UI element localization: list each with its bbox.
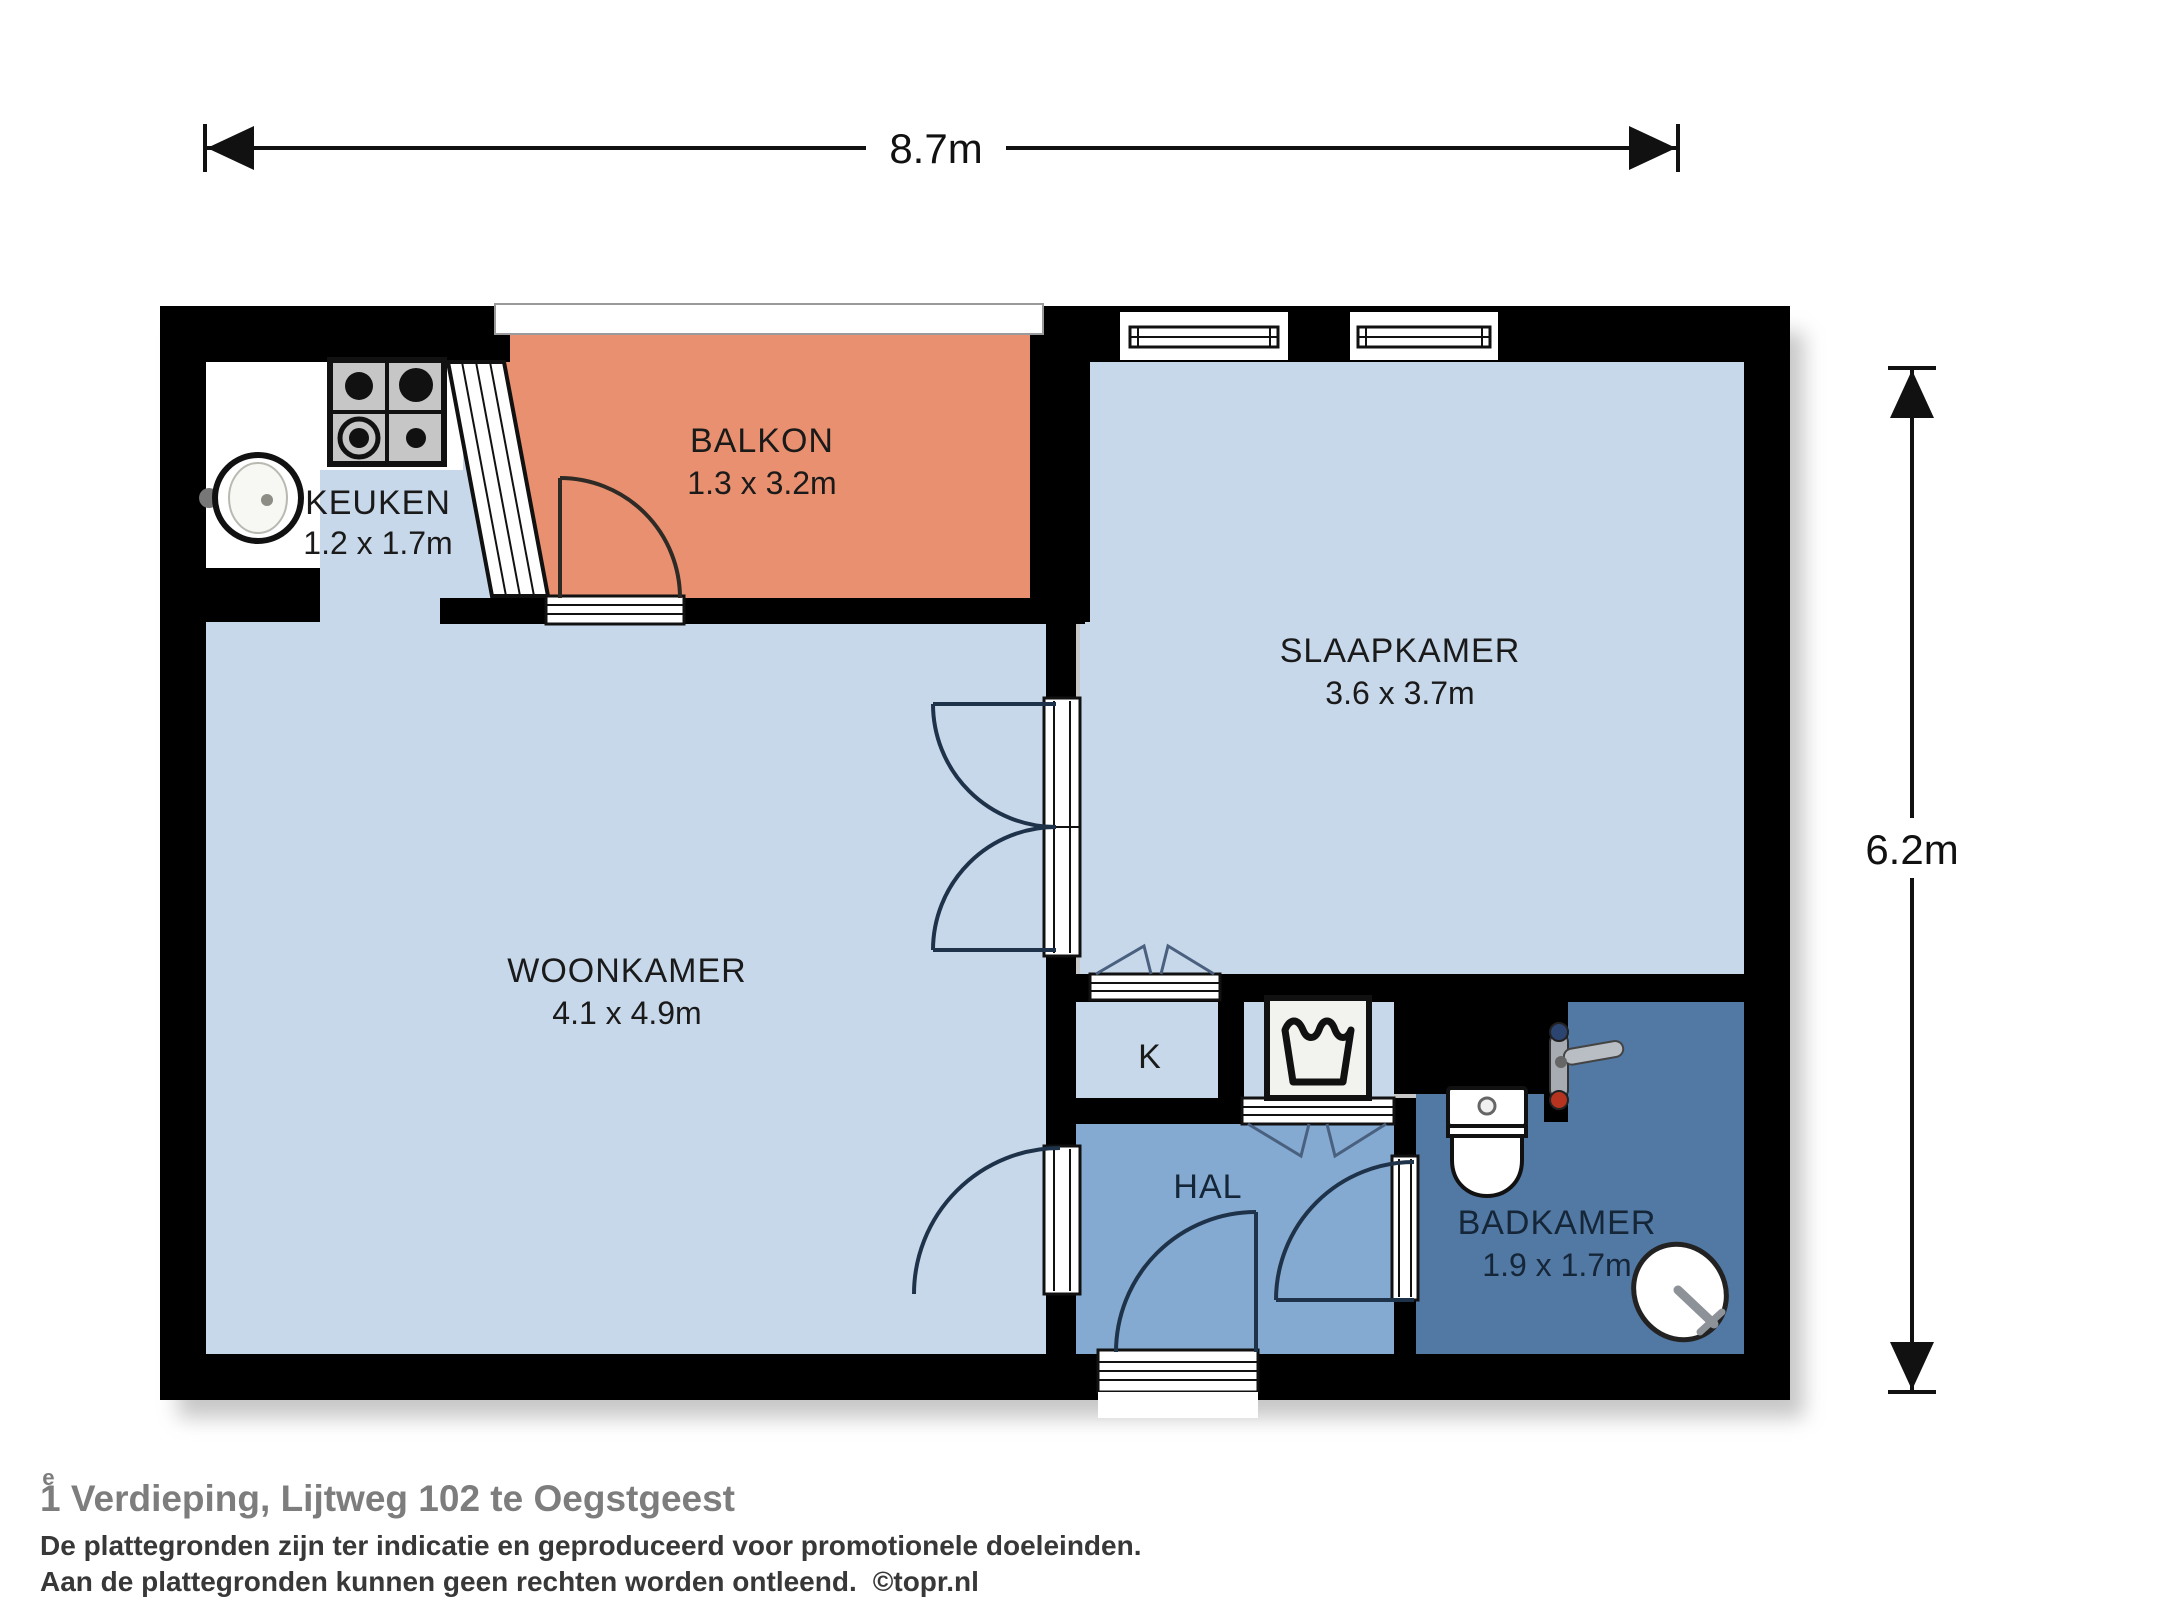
wall-top-left [160, 306, 510, 362]
badkamer-size: 1.9 x 1.7m [1482, 1247, 1631, 1283]
hal-floor [1076, 1124, 1396, 1356]
dimension-width-label: 8.7m [889, 125, 982, 172]
hal-label: HAL [1173, 1168, 1242, 1206]
wall-left [160, 306, 206, 1400]
window-slaapkamer-2 [1350, 312, 1498, 360]
disclaimer-line-2: Aan de plattegronden kunnen geen rechten… [40, 1564, 1440, 1600]
kast-label: K [1138, 1038, 1162, 1076]
floor-plan-svg: KEUKEN 1.2 x 1.7m BALKON 1.3 x 3.2m SLAA… [0, 0, 2160, 1620]
footer: 1e Verdieping, Lijtweg 102 te Oegstgeest… [40, 1478, 1440, 1601]
wall-bottom [160, 1354, 1790, 1400]
dimension-height-label: 6.2m [1865, 826, 1958, 873]
badkamer-label: BADKAMER [1458, 1204, 1657, 1242]
woonkamer-hal-door-strip [1044, 1146, 1080, 1294]
slaapkamer-label: SLAAPKAMER [1280, 632, 1521, 670]
toilet-icon [1448, 1088, 1526, 1196]
keuken-size: 1.2 x 1.7m [303, 525, 452, 561]
front-door-threshold [1098, 1350, 1258, 1418]
wall-kast-niche [1218, 1000, 1244, 1102]
washing-machine-icon [1267, 998, 1369, 1098]
wall-keuken-stub [160, 568, 320, 622]
badkamer-door-strip [1392, 1156, 1418, 1300]
wall-badkamer-block [1394, 974, 1556, 1094]
window-slaapkamer-1 [1120, 312, 1288, 360]
floorplan-page: { "dimensions": { "width_label": "8.7m",… [0, 0, 2160, 1620]
dimension-width: 8.7m [205, 116, 1678, 178]
balkon-railing [495, 304, 1043, 334]
page-title: 1e Verdieping, Lijtweg 102 te Oegstgeest [40, 1478, 1440, 1520]
disclaimer-text: Aan de plattegronden kunnen geen rechten… [40, 1566, 857, 1597]
keuken-label: KEUKEN [305, 484, 451, 522]
wall-right [1744, 306, 1790, 1400]
title-superscript: e [42, 1465, 54, 1491]
woonkamer-size: 4.1 x 4.9m [552, 995, 701, 1031]
wall-center-upper [1030, 306, 1090, 622]
credit: ©topr.nl [873, 1566, 979, 1597]
balkon-door-threshold [546, 596, 684, 624]
balkon-label: BALKON [690, 422, 834, 460]
disclaimer-line-1: De plattegronden zijn ter indicatie en g… [40, 1528, 1440, 1564]
woonkamer-label: WOONKAMER [507, 952, 746, 990]
gas-stove-icon [330, 360, 444, 464]
title-rest: Verdieping, Lijtweg 102 te Oegstgeest [61, 1478, 735, 1519]
balkon-size: 1.3 x 3.2m [687, 465, 836, 501]
dimension-height: 6.2m [1845, 368, 1979, 1392]
slaapkamer-size: 3.6 x 3.7m [1325, 675, 1474, 711]
wall-balkon-bottom [440, 598, 1085, 624]
